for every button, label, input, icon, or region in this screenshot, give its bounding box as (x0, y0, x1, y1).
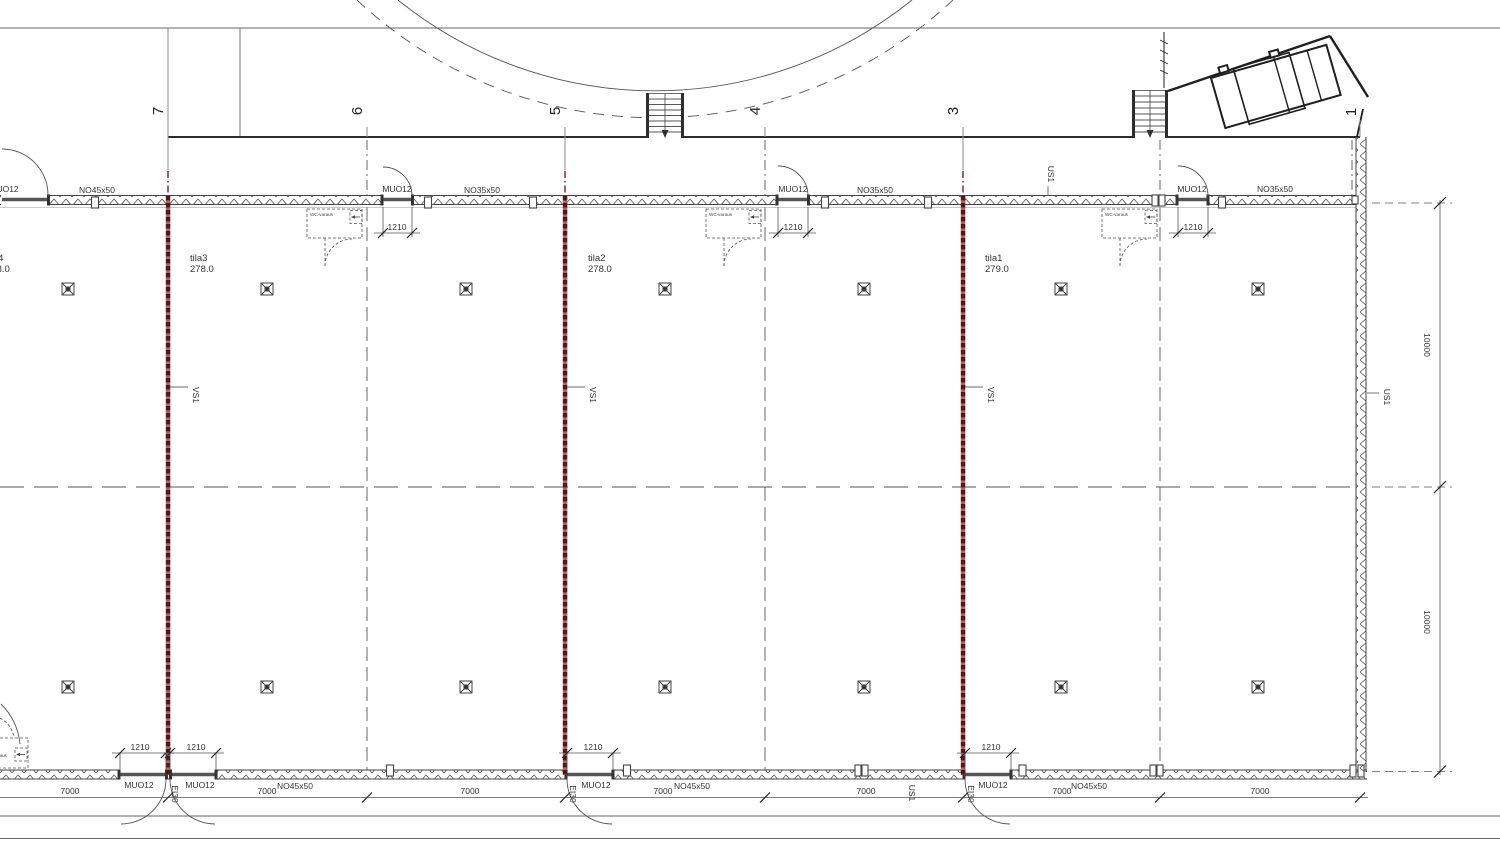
exterior-tag-us1: US1 (1046, 166, 1056, 183)
bay-dim: 7000 (654, 786, 673, 796)
door-label-muo12: MUO12 (978, 780, 1008, 790)
dim-1210-top-tila1: 1210 (1169, 207, 1216, 238)
dim-1210-bottom-grid7-right: 1210 (162, 742, 224, 770)
dim-1210-top-tila3: 1210 (374, 207, 420, 238)
fire-tag-ei30: EI30 (966, 785, 976, 803)
top-wall-label-2: NO35x50 (464, 185, 500, 195)
grid-label-7: 7 (150, 107, 167, 115)
room-area-tila3: 278.0 (190, 264, 214, 275)
room-name-tila4: tila4 (0, 253, 3, 264)
depth-dimension-column: 10000 10000 (1372, 197, 1452, 778)
door-label-muo12: MUO12 (778, 184, 808, 194)
column-symbols (62, 283, 1264, 693)
wc-varaus-label: WC-varaus (310, 212, 334, 217)
dim-1210-bottom-grid7-left: 1210 (112, 742, 174, 770)
wc-reservation-tila2: WC-varaus (706, 209, 761, 266)
wall-type-labels: NO45x50 NO35x50 NO35x50 NO35x50 NO45x50 … (0, 166, 1392, 803)
door-label-muo12: MUO12 (382, 184, 412, 194)
door-label-muo12: MUO12 (581, 780, 611, 790)
top-door-swings (2, 149, 1208, 196)
dim-value: 1210 (388, 222, 407, 232)
wc-varaus-label: WC-varaus (709, 212, 733, 217)
room-name-tila2: tila2 (588, 253, 605, 264)
fire-wall-grid3 (961, 196, 966, 775)
grid-label-3: 3 (945, 107, 962, 115)
room-area-tila4: 238.0 (0, 264, 10, 275)
partition-tag-vs1: VS1 (986, 387, 996, 403)
dim-value: 1210 (1184, 222, 1203, 232)
dim-value: 1210 (584, 742, 603, 752)
wc-varaus-label: WC-varaus (1105, 212, 1129, 217)
depth-dim: 10000 (1422, 333, 1432, 357)
wc-reservation-tila3: WC-varaus (307, 209, 362, 266)
top-wall-label-3: NO35x50 (857, 185, 893, 195)
grid-lines (0, 28, 1360, 770)
room-area-tila2: 278.0 (588, 264, 612, 275)
stairs-icon-right (1132, 90, 1168, 138)
door-label-muo12: MUO12 (0, 184, 19, 194)
bottom-wall-label-3: NO45x50 (1071, 781, 1107, 791)
door-label-muo12: MUO12 (124, 780, 154, 790)
truck-icon (1209, 36, 1342, 131)
bay-dim: 7000 (857, 786, 876, 796)
dim-1210-bottom-grid3: 1210 (957, 742, 1019, 770)
fire-walls (166, 171, 966, 775)
partition-tag-vs1: VS1 (191, 387, 201, 403)
floor-plan-drawing: 7 6 5 4 3 2 1 (0, 0, 1500, 842)
dim-value: 1210 (187, 742, 206, 752)
door-label-muo12: MUO12 (185, 780, 215, 790)
fire-tag-ei30: EI30 (568, 785, 578, 803)
right-wall (1352, 137, 1366, 772)
door-label-muo12: MUO12 (1177, 184, 1207, 194)
column-icon (62, 283, 1264, 693)
dim-value: 1210 (131, 742, 150, 752)
stairs-icon-left (646, 93, 684, 138)
depth-dim: 10000 (1422, 610, 1432, 634)
dim-value: 1210 (784, 222, 803, 232)
top-wall-label-1: NO45x50 (79, 185, 115, 195)
bottom-wall-label-1: NO45x50 (277, 781, 313, 791)
bottom-wall (0, 704, 1367, 824)
room-labels: tila4 238.0 tila3 278.0 tila2 278.0 tila… (0, 253, 1009, 275)
dim-value: 1210 (982, 742, 1001, 752)
bottom-wall-label-2: NO45x50 (674, 781, 710, 791)
fire-wall-grid7 (166, 196, 171, 775)
top-wall (0, 149, 1356, 208)
site-frame (0, 28, 1500, 839)
room-area-tila1: 279.0 (985, 264, 1009, 275)
dim-1210-top-tila2: 1210 (769, 207, 816, 238)
wc-reservation-tila4: WC-varaus (0, 718, 28, 768)
floor-plan-canvas: 7 6 5 4 3 2 1 (0, 0, 1500, 842)
bay-dim: 7000 (1251, 786, 1270, 796)
driveway-arc-solid (398, 0, 912, 91)
wc-reservation-tila1: WC-varaus (1102, 209, 1157, 266)
bay-dim: 7000 (61, 786, 80, 796)
room-name-tila1: tila1 (985, 253, 1002, 264)
grid-label-4: 4 (747, 107, 764, 115)
top-wall-label-4: NO35x50 (1257, 184, 1293, 194)
bay-dim: 7000 (461, 786, 480, 796)
grid-label-6: 6 (349, 107, 366, 115)
bay-dim: 7000 (1053, 786, 1072, 796)
wc-varaus-label: WC-varaus (0, 753, 8, 758)
dim-1210-bottom-grid5: 1210 (559, 742, 621, 770)
bay-dim: 7000 (258, 786, 277, 796)
fire-wall-grid5 (563, 196, 568, 775)
partition-tag-vs1: VS1 (588, 387, 598, 403)
bottom-door-swings (1, 704, 1010, 824)
grid-label-1: 1 (1343, 108, 1360, 116)
room-name-tila3: tila3 (190, 253, 207, 264)
grid-label-5: 5 (547, 107, 564, 115)
exterior-tag-us1: US1 (907, 785, 917, 802)
exterior-tag-us1: US1 (1382, 389, 1392, 406)
grid-labels: 7 6 5 4 3 2 1 (150, 107, 1360, 116)
